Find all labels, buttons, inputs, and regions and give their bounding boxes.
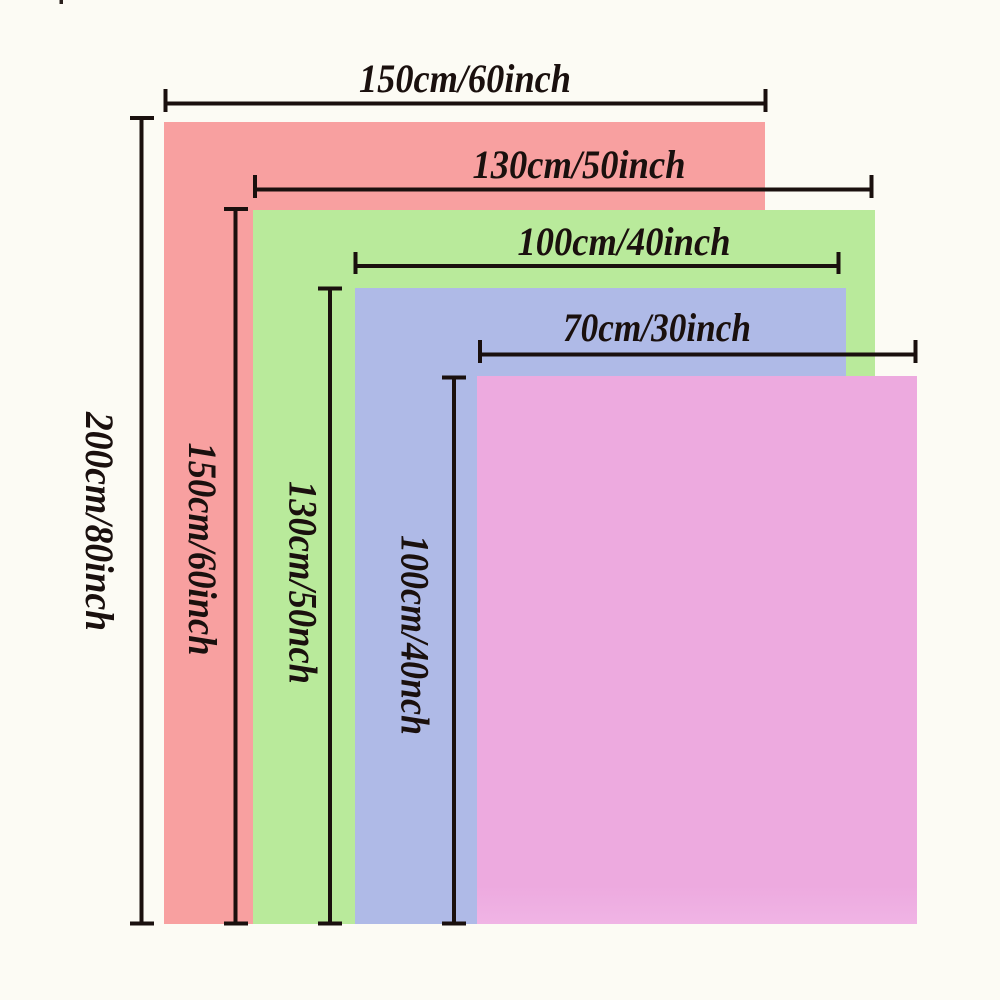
svg-text:70cm/30inch: 70cm/30inch bbox=[563, 305, 751, 350]
svg-text:130cm/50inch: 130cm/50inch bbox=[473, 142, 686, 187]
svg-text:130cm/50nch: 130cm/50nch bbox=[281, 481, 326, 684]
svg-text:100cm/40nch: 100cm/40nch bbox=[393, 535, 438, 735]
svg-text:150cm/60inch: 150cm/60inch bbox=[180, 443, 225, 656]
svg-text:200cm/80inch: 200cm/80inch bbox=[77, 411, 122, 631]
svg-text:150cm/60inch: 150cm/60inch bbox=[359, 56, 571, 101]
svg-text:100cm/40inch: 100cm/40inch bbox=[518, 219, 731, 264]
